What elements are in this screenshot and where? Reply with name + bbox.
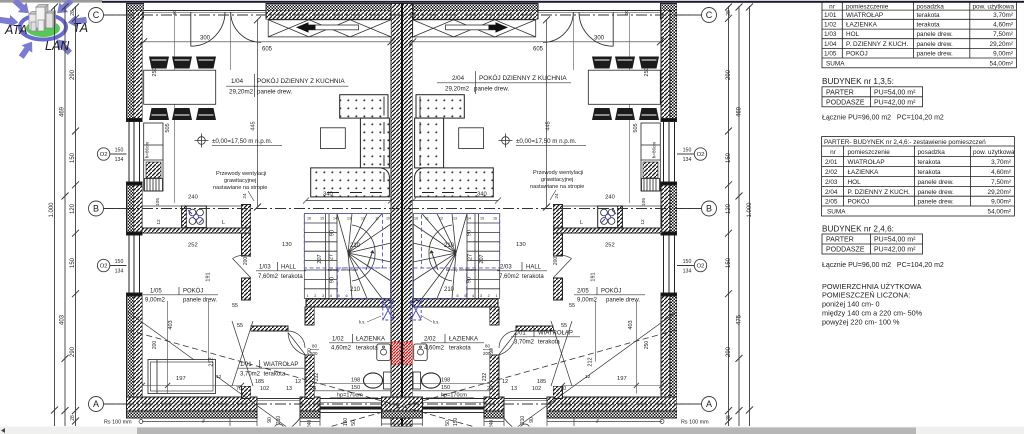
svg-text:POKÓJ DZIENNY Z KUCHNIA: POKÓJ DZIENNY Z KUCHNIA (479, 73, 567, 82)
svg-text:7,50m²: 7,50m² (991, 179, 1011, 186)
svg-text:PARTER- BUDYNEK nr 2,4,6:- zes: PARTER- BUDYNEK nr 2,4,6:- zestawienie p… (824, 139, 986, 146)
svg-text:29,20m2: 29,20m2 (229, 89, 254, 96)
svg-text:9,00m2: 9,00m2 (577, 298, 598, 304)
svg-text:12: 12 (361, 217, 365, 221)
svg-text:terakota: terakota (917, 12, 941, 19)
svg-text:250: 250 (152, 67, 158, 76)
svg-text:28: 28 (726, 415, 732, 421)
svg-text:102: 102 (532, 386, 541, 392)
svg-text:schody drewniane: schody drewniane (328, 268, 359, 272)
svg-text:LAN: LAN (45, 39, 70, 53)
svg-text:28: 28 (726, 10, 732, 16)
svg-text:130: 130 (282, 242, 292, 248)
svg-text:HALL: HALL (281, 265, 297, 271)
svg-text:150: 150 (115, 259, 124, 265)
svg-text:55: 55 (237, 323, 243, 329)
svg-text:24: 24 (554, 193, 560, 199)
svg-text:197: 197 (176, 376, 186, 382)
svg-text:134: 134 (683, 269, 692, 275)
svg-text:210: 210 (444, 287, 455, 293)
svg-text:PU=54,00 m²: PU=54,00 m² (874, 237, 916, 244)
svg-text:powyżej 220 cm- 100 %: powyżej 220 cm- 100 % (822, 318, 900, 327)
svg-text:200: 200 (483, 351, 491, 356)
svg-text:250: 250 (644, 67, 650, 76)
svg-text:P. DZIENNY Z KUCH.: P. DZIENNY Z KUCH. (846, 41, 908, 48)
svg-text:207: 207 (479, 254, 485, 263)
svg-text:252: 252 (605, 243, 615, 249)
svg-text:C: C (93, 10, 100, 20)
svg-text:50: 50 (351, 420, 357, 426)
svg-text:14: 14 (467, 217, 471, 221)
svg-text:POKÓJ: POKÓJ (846, 49, 868, 58)
svg-text:150: 150 (70, 152, 76, 163)
svg-text:h=86cm: h=86cm (145, 142, 150, 158)
svg-text:pow. użytkowa: pow. użytkowa (973, 3, 1015, 10)
svg-text:445: 445 (546, 121, 552, 130)
svg-text:7,60m2: 7,60m2 (258, 274, 279, 280)
svg-text:40: 40 (172, 10, 177, 16)
svg-text:10: 10 (386, 217, 390, 221)
svg-text:210: 210 (350, 287, 361, 293)
svg-text:h=86cm: h=86cm (652, 142, 657, 158)
svg-text:między 140 cm a 220 cm- 50%: między 140 cm a 220 cm- 50% (822, 309, 923, 318)
svg-text:120: 120 (70, 203, 76, 214)
svg-text:nastawiane na stropie: nastawiane na stropie (530, 184, 584, 190)
svg-text:475: 475 (737, 314, 743, 325)
svg-text:197: 197 (617, 376, 627, 382)
svg-text:150: 150 (726, 257, 732, 268)
svg-text:50: 50 (445, 420, 451, 426)
svg-text:nastawiane na stropie: nastawiane na stropie (213, 185, 267, 191)
svg-text:198: 198 (441, 378, 450, 384)
svg-text:24: 24 (310, 386, 316, 392)
svg-text:O2: O2 (100, 152, 108, 158)
svg-text:1/01: 1/01 (824, 12, 837, 19)
svg-text:O2: O2 (697, 152, 705, 158)
svg-text:ATA: ATA (4, 23, 27, 37)
svg-text:12: 12 (439, 217, 443, 221)
svg-text:2/03: 2/03 (825, 179, 838, 186)
svg-text:2/03: 2/03 (500, 265, 512, 271)
svg-text:150: 150 (343, 418, 349, 427)
svg-text:55: 55 (561, 323, 567, 329)
svg-text:Rs 100 mm: Rs 100 mm (681, 420, 709, 426)
svg-text:134: 134 (115, 269, 124, 275)
svg-text:191: 191 (206, 272, 212, 281)
svg-text:ŁAZIENKA: ŁAZIENKA (356, 337, 385, 343)
svg-text:16: 16 (307, 217, 311, 221)
svg-text:panele drew.: panele drew. (474, 86, 509, 93)
svg-text:80: 80 (485, 344, 491, 349)
svg-text:70: 70 (560, 386, 566, 392)
svg-text:Rs 100 mm: Rs 100 mm (104, 420, 132, 426)
svg-text:BUDYNEK nr 2,4,6:: BUDYNEK nr 2,4,6: (822, 225, 894, 234)
svg-text:B: B (706, 204, 712, 214)
svg-text:posadzka: posadzka (917, 3, 945, 10)
svg-text:%: % (201, 419, 206, 423)
svg-text:605: 605 (262, 47, 273, 53)
svg-text:panele drew.: panele drew. (917, 41, 953, 48)
svg-text:2: 2 (488, 294, 490, 298)
svg-text:1/04: 1/04 (824, 41, 837, 48)
svg-text:ŁAZIENKA: ŁAZIENKA (449, 337, 478, 343)
svg-text:29,20m2: 29,20m2 (445, 86, 470, 93)
svg-text:grawitacyjnej: grawitacyjnej (224, 178, 256, 184)
svg-text:340: 340 (477, 192, 487, 198)
svg-text:9,00m²: 9,00m² (991, 199, 1011, 206)
svg-text:panele drew.: panele drew. (918, 189, 954, 196)
svg-text:3: 3 (322, 294, 324, 298)
svg-text:P. DZIENNY Z KUCH.: P. DZIENNY Z KUCH. (848, 189, 910, 196)
svg-text:posadzka: posadzka (918, 149, 946, 156)
svg-text:54,00m²: 54,00m² (988, 209, 1011, 216)
svg-text:3: 3 (480, 294, 482, 298)
svg-text:150: 150 (683, 148, 692, 154)
svg-text:290: 290 (726, 346, 732, 357)
svg-text:191: 191 (591, 272, 597, 281)
svg-text:6: 6 (345, 294, 347, 298)
svg-text:4: 4 (472, 294, 474, 298)
svg-text:10: 10 (414, 217, 418, 221)
svg-text:185: 185 (255, 379, 264, 385)
svg-text:1.000: 1.000 (747, 202, 753, 218)
svg-text:terakota: terakota (917, 22, 941, 29)
svg-text:80: 80 (312, 344, 318, 349)
svg-text:3,70m²: 3,70m² (993, 12, 1013, 19)
svg-text:POKÓJ DZIENNY Z KUCHNIA: POKÓJ DZIENNY Z KUCHNIA (257, 76, 345, 85)
svg-text:poniżej 140 cm- 0: poniżej 140 cm- 0 (822, 300, 880, 309)
svg-text:29,20m²: 29,20m² (988, 189, 1011, 196)
svg-text:L: L (222, 220, 225, 226)
svg-text:13: 13 (347, 217, 351, 221)
svg-text:469: 469 (737, 106, 743, 117)
svg-text:14: 14 (333, 217, 337, 221)
svg-text:13: 13 (286, 386, 292, 392)
svg-text:4,60m2: 4,60m2 (424, 346, 445, 352)
svg-text:150: 150 (70, 257, 76, 268)
svg-text:1: 1 (495, 294, 497, 298)
svg-text:2: 2 (314, 294, 316, 298)
svg-text:WIATROŁAP: WIATROŁAP (848, 159, 885, 166)
svg-text:±0,00=17,50 m n.p.m.: ±0,00=17,50 m n.p.m. (516, 138, 577, 145)
svg-text:24: 24 (242, 193, 248, 199)
svg-text:B: B (93, 204, 99, 214)
svg-text:O2: O2 (697, 264, 705, 270)
svg-text:panele drew.: panele drew. (917, 31, 953, 38)
svg-text:290: 290 (726, 69, 732, 80)
svg-text:24: 24 (487, 386, 493, 392)
svg-text:terakota: terakota (918, 169, 942, 176)
svg-text:WIATROŁAP: WIATROŁAP (264, 362, 299, 368)
svg-text:200: 200 (310, 351, 318, 356)
svg-text:212: 212 (588, 357, 594, 366)
svg-text:1/03: 1/03 (259, 265, 271, 271)
svg-text:2/04: 2/04 (452, 75, 465, 82)
svg-text:1: 1 (306, 294, 308, 298)
svg-text:150: 150 (351, 385, 360, 391)
svg-text:terakota: terakota (264, 372, 286, 378)
svg-text:Przewody wentylacji: Przewody wentylacji (533, 170, 583, 176)
svg-text:134: 134 (683, 157, 692, 163)
svg-text:3,70m2: 3,70m2 (514, 340, 535, 346)
svg-text:1/05: 1/05 (150, 289, 162, 295)
svg-text:403: 403 (628, 320, 634, 329)
svg-text:210: 210 (444, 243, 455, 249)
svg-text:90: 90 (267, 417, 273, 423)
svg-text:150: 150 (683, 259, 692, 265)
svg-text:2/02: 2/02 (424, 337, 436, 343)
svg-text:240: 240 (605, 195, 615, 201)
svg-text:Przewody wentylacji: Przewody wentylacji (216, 171, 266, 177)
svg-text:pomieszczenie: pomieszczenie (848, 149, 891, 156)
svg-text:2/01: 2/01 (825, 159, 838, 166)
svg-text:90: 90 (467, 230, 473, 236)
svg-text:28: 28 (70, 415, 76, 421)
svg-text:13: 13 (511, 386, 517, 392)
svg-text:90: 90 (529, 417, 535, 423)
svg-text:29,20m²: 29,20m² (990, 41, 1013, 48)
svg-text:232: 232 (482, 373, 488, 382)
svg-text:9,00m2: 9,00m2 (145, 298, 166, 304)
svg-text:16: 16 (493, 217, 497, 221)
svg-text:7,60m2: 7,60m2 (499, 274, 520, 280)
svg-text:4: 4 (330, 294, 332, 298)
svg-text:SUMA: SUMA (826, 60, 845, 67)
svg-text:90: 90 (330, 230, 336, 236)
svg-text:40: 40 (624, 10, 629, 16)
svg-text:2/05: 2/05 (577, 289, 589, 295)
svg-text:A: A (706, 399, 712, 409)
svg-text:13: 13 (453, 217, 457, 221)
svg-text:PODDASZE: PODDASZE (826, 247, 865, 254)
svg-text:2/02: 2/02 (825, 169, 838, 176)
svg-text:terakota: terakota (281, 274, 303, 280)
svg-text:panele drew.: panele drew. (183, 298, 217, 304)
svg-text:terakota: terakota (449, 346, 471, 352)
svg-text:terakota: terakota (538, 340, 560, 346)
svg-text:505: 505 (633, 123, 639, 132)
svg-text:2/01: 2/01 (514, 331, 526, 337)
svg-text:pomieszczenie: pomieszczenie (846, 3, 889, 10)
svg-text:1/01: 1/01 (240, 362, 252, 368)
svg-text:4,60m2: 4,60m2 (331, 346, 352, 352)
svg-text:1.000: 1.000 (49, 202, 55, 218)
svg-text:300: 300 (594, 36, 605, 42)
svg-text:SUMA: SUMA (827, 209, 846, 216)
svg-text:POKÓJ: POKÓJ (183, 288, 203, 295)
svg-text:240: 240 (188, 195, 198, 201)
svg-text:605: 605 (533, 47, 544, 53)
svg-text:pow. użytkowa: pow. użytkowa (973, 149, 1015, 156)
svg-text:HALL: HALL (526, 265, 542, 271)
svg-text:200: 200 (243, 257, 249, 266)
svg-text:ŁAZIENKA: ŁAZIENKA (846, 22, 878, 29)
svg-text:210: 210 (350, 243, 361, 249)
svg-text:7,50m²: 7,50m² (993, 31, 1013, 38)
svg-text:PARTER: PARTER (826, 237, 854, 244)
svg-text:105: 105 (641, 198, 647, 206)
svg-text:28: 28 (70, 10, 76, 16)
svg-text:PARTER: PARTER (826, 90, 854, 97)
svg-text:k.s.: k.s. (433, 320, 440, 325)
svg-text:1/02: 1/02 (332, 337, 344, 343)
svg-text:12: 12 (640, 219, 646, 225)
svg-text:6: 6 (456, 294, 458, 298)
svg-text:212: 212 (209, 357, 215, 366)
svg-text:O2: O2 (100, 264, 108, 270)
svg-text:290: 290 (70, 346, 76, 357)
svg-text:300: 300 (200, 36, 211, 42)
svg-text:210: 210 (520, 416, 526, 425)
svg-text:9,00m²: 9,00m² (993, 51, 1013, 58)
svg-text:150: 150 (115, 148, 124, 154)
svg-text:3,70m2: 3,70m2 (240, 372, 261, 378)
svg-text:HOL: HOL (848, 179, 862, 186)
svg-text:55: 55 (232, 303, 238, 309)
svg-text:150: 150 (726, 152, 732, 163)
svg-text:nr: nr (829, 3, 836, 10)
svg-text:505: 505 (165, 123, 171, 132)
svg-text:Łącznie PU=96,00 m2 PC=104,2: Łącznie PU=96,00 m2 PC=104,20 m2 (822, 115, 944, 122)
svg-text:232: 232 (314, 373, 320, 382)
svg-text:PODDASZE: PODDASZE (826, 99, 865, 106)
svg-text:1/04: 1/04 (231, 78, 244, 85)
svg-text:210: 210 (276, 416, 282, 425)
svg-text:WIATROŁAP: WIATROŁAP (538, 331, 573, 337)
svg-text:4,60m²: 4,60m² (993, 22, 1013, 29)
svg-text:A: A (93, 399, 99, 409)
svg-text:panele drew.: panele drew. (918, 199, 954, 206)
svg-text:12: 12 (295, 379, 301, 385)
svg-text:5: 5 (338, 294, 340, 298)
svg-text:90: 90 (467, 277, 473, 283)
svg-text:250: 250 (644, 341, 650, 350)
svg-text:nr: nr (830, 149, 837, 156)
svg-text:12: 12 (156, 219, 162, 225)
svg-text:terakota: terakota (356, 346, 378, 352)
svg-text:terakota: terakota (522, 274, 544, 280)
svg-text:70: 70 (236, 386, 242, 392)
svg-text:PU=54,00 m²: PU=54,00 m² (874, 90, 916, 97)
svg-text:12: 12 (585, 374, 591, 380)
svg-text:12: 12 (502, 379, 508, 385)
svg-text:3,70m²: 3,70m² (991, 159, 1011, 166)
svg-text:403: 403 (168, 320, 174, 329)
svg-text:Łącznie PU=96,00 m2 PC=104,2: Łącznie PU=96,00 m2 PC=104,20 m2 (822, 262, 944, 269)
svg-text:BUDYNEK nr 1,3,5:: BUDYNEK nr 1,3,5: (822, 77, 894, 86)
svg-text:C: C (706, 10, 713, 20)
svg-text:%: % (595, 419, 600, 423)
svg-text:12: 12 (216, 374, 222, 380)
svg-text:105: 105 (155, 198, 161, 206)
svg-text:±0,00=17,50 m n.p.m.: ±0,00=17,50 m n.p.m. (212, 138, 273, 145)
svg-text:207: 207 (317, 254, 323, 263)
svg-text:150: 150 (441, 385, 450, 391)
svg-text:290: 290 (70, 69, 76, 80)
svg-text:252: 252 (188, 243, 198, 249)
svg-text:5: 5 (464, 294, 466, 298)
svg-text:15: 15 (480, 217, 484, 221)
svg-text:k.s.: k.s. (359, 320, 366, 325)
svg-text:ŁAZIENKA: ŁAZIENKA (848, 169, 880, 176)
svg-text:2/04: 2/04 (825, 189, 838, 196)
svg-text:POKÓJ: POKÓJ (601, 288, 621, 295)
svg-text:55: 55 (569, 303, 575, 309)
svg-text:panele drew.: panele drew. (918, 179, 954, 186)
svg-text:POKÓJ: POKÓJ (848, 197, 870, 206)
svg-text:27: 27 (468, 254, 474, 260)
svg-text:PU=42,00 m²: PU=42,00 m² (874, 99, 916, 106)
svg-text:27: 27 (329, 254, 335, 260)
svg-text:L: L (580, 220, 583, 226)
svg-text:PU=42,00 m²: PU=42,00 m² (874, 247, 916, 254)
svg-text:102: 102 (260, 386, 269, 392)
svg-text:403: 403 (60, 314, 66, 325)
svg-text:11: 11 (425, 217, 429, 221)
svg-text:HOL: HOL (846, 31, 860, 38)
svg-text:120: 120 (726, 203, 732, 214)
svg-text:130: 130 (516, 242, 526, 248)
svg-text:90: 90 (330, 277, 336, 283)
svg-text:1/02: 1/02 (824, 22, 837, 29)
svg-text:15: 15 (320, 217, 324, 221)
svg-text:200: 200 (553, 257, 559, 266)
svg-text:150: 150 (453, 418, 459, 427)
svg-text:grawitacyjnej: grawitacyjnej (541, 177, 573, 183)
svg-text:WIATROŁAP: WIATROŁAP (846, 12, 883, 19)
svg-text:2/05: 2/05 (825, 199, 838, 206)
svg-text:panele drew.: panele drew. (606, 298, 640, 304)
svg-text:445: 445 (251, 121, 257, 130)
svg-text:schody drewniane: schody drewniane (446, 268, 477, 272)
svg-text:POMIESZCZEŃ LICZONA:: POMIESZCZEŃ LICZONA: (822, 291, 910, 300)
svg-text:198: 198 (351, 378, 360, 384)
svg-text:terakota: terakota (918, 159, 942, 166)
svg-text:54,00m²: 54,00m² (990, 60, 1013, 67)
svg-text:1/05: 1/05 (824, 51, 837, 58)
svg-text:469: 469 (60, 106, 66, 117)
svg-text:134: 134 (115, 157, 124, 163)
svg-text:185: 185 (537, 379, 546, 385)
svg-text:4,60m²: 4,60m² (991, 169, 1011, 176)
svg-text:340: 340 (323, 192, 333, 198)
svg-text:11: 11 (375, 217, 379, 221)
svg-text:panele drew.: panele drew. (917, 51, 953, 58)
svg-text:panele drew.: panele drew. (257, 89, 292, 96)
svg-text:1/03: 1/03 (824, 31, 837, 38)
svg-text:200: 200 (152, 341, 158, 350)
